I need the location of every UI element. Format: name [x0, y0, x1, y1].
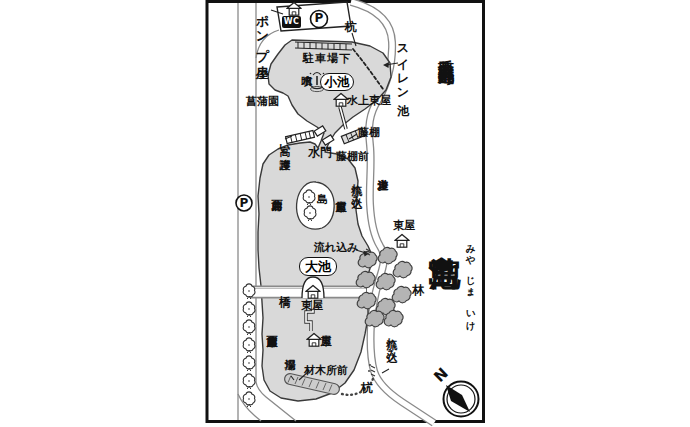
title-furigana: みや: [466, 237, 476, 259]
label-water-pavilion: 水上東屋: [347, 95, 391, 106]
label-island: 島: [317, 194, 328, 205]
label-waterlily-pond: スイレン池: [397, 35, 409, 95]
label-inflow-upper: 流れ込み: [351, 176, 362, 201]
label-big-pond: 大池: [299, 257, 337, 276]
label-pavilion-east: 東屋: [393, 220, 415, 231]
title-furigana: じま: [466, 269, 476, 291]
label-small-pond: 小池: [320, 73, 354, 91]
label-pump-hut: ポンプ小屋: [256, 5, 269, 59]
parking-letter-top: P: [312, 12, 326, 24]
label-forest: 林: [412, 284, 424, 296]
label-wisteria-front: 藤棚前: [336, 151, 369, 162]
title-pond-name: 宮島池: [429, 230, 461, 233]
label-stake-bottom: 杭: [361, 382, 373, 394]
label-inflow-lower: 流れ込み: [386, 330, 397, 355]
label-wisteria-trellis: 藤棚: [358, 127, 380, 138]
title-region: 千葉県山武郡九十九里町: [438, 47, 454, 58]
compass: [444, 382, 479, 417]
label-high-revetment: 高い護岸: [279, 137, 290, 150]
label-below-parking: 駐車場下: [303, 53, 351, 64]
parking-letter-left: P: [237, 197, 251, 209]
island: [297, 182, 335, 229]
label-sluice-gate: 水門: [308, 146, 332, 158]
title-furigana: いけ: [466, 303, 476, 325]
label-stake-top: 杭: [345, 21, 357, 33]
fishing-map: ポンプ小屋 P WC 杭 スイレン池 駐車場下 噴水 小池 菖蒲園 水上東屋 藤…: [0, 0, 690, 427]
label-bridge: 橋: [279, 296, 291, 308]
wc-badge: WC: [282, 16, 301, 28]
label-inflow-middle: 流れ込み: [314, 242, 359, 253]
label-iris-garden: 菖蒲園: [246, 96, 279, 107]
label-lumber-yard-front: 材木所前: [304, 365, 348, 376]
label-pavilion-bridge: 東屋: [301, 300, 323, 311]
